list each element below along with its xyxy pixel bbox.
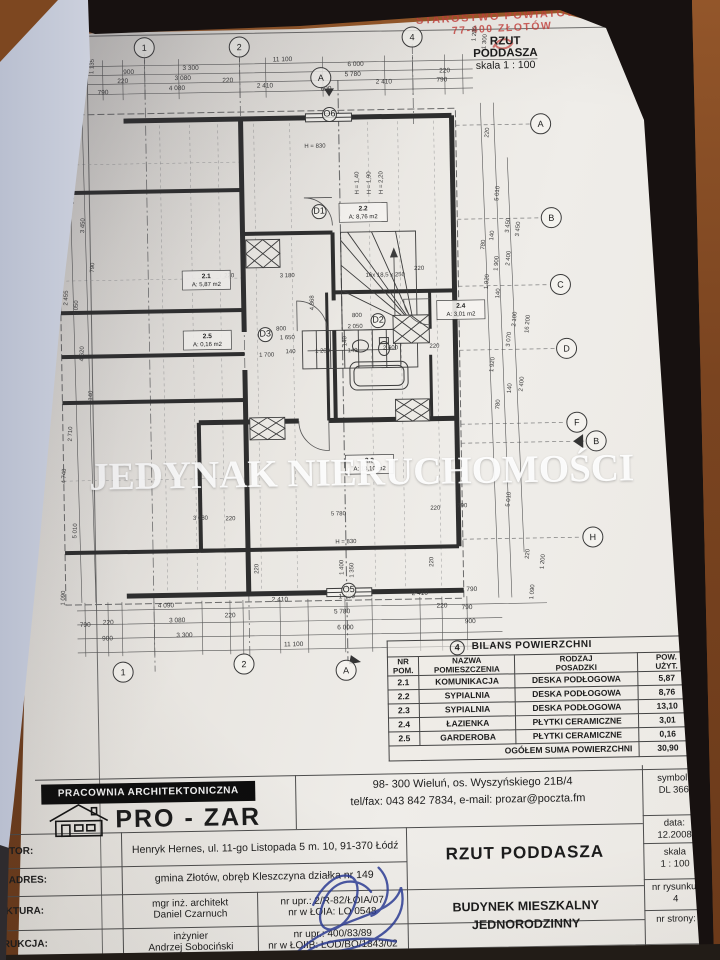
construction-person: inżynier Andrzej Sobociński (126, 930, 256, 954)
dim-interior: 16x 18,5 x 250 (366, 272, 406, 279)
dim-interior: 220 (429, 344, 440, 350)
dim-top: 2 410 (376, 78, 393, 85)
dim-bottom: 6 000 (337, 624, 354, 631)
dim-top: 3 300 (182, 65, 199, 72)
photographed-blueprint-page: STAROSTWO POWIATOWE 77-400 ZŁOTÓW RZUT P… (0, 0, 720, 960)
table-cell: 5,87 (638, 671, 696, 686)
table-title: BILANS POWIERZCHNI (472, 639, 592, 652)
dim-right: 3 070 (506, 331, 513, 347)
house-logo-icon (47, 798, 110, 839)
dim-right: 1 090 (529, 583, 536, 599)
table-cell: 3,01 (638, 713, 696, 728)
dim-bottom: 220 (437, 602, 448, 609)
table-ref-circle: 4 (450, 640, 465, 655)
dim-top: 6 000 (347, 61, 364, 68)
dim-right: 5 010 (494, 185, 501, 201)
architecture-person: mgr inż. architekt Daniel Czarnuch (125, 897, 255, 921)
grid-marker-bottom-label: A (343, 665, 349, 675)
dim-bottom: 3 300 (176, 632, 193, 639)
grid-marker-right-label: F (574, 417, 580, 427)
dim-right: 1 280 (471, 25, 478, 41)
chimney-blocks (246, 237, 431, 440)
dim-right: 780 (480, 239, 487, 250)
meta-date: data:12.2008 (643, 817, 706, 842)
grid-marker-right-label: B (548, 213, 554, 223)
table-cell: 2.1 (388, 676, 419, 691)
dim-right: 1 920 (489, 356, 496, 372)
table-cell: 2.2 (388, 690, 419, 705)
ref-marker-o5-label: O5 (343, 584, 355, 594)
dim-interior: 1 650 (280, 335, 296, 341)
table-cell: 0,16 (638, 727, 696, 742)
dim-right: 140 (495, 288, 502, 299)
grid-marker-right-label: B (593, 436, 599, 446)
dim-top: 5 780 (345, 71, 362, 78)
ref-marker-d1-label: D1 (313, 205, 325, 215)
table-total-value: 30,90 (639, 741, 697, 757)
dim-top: 2 410 (257, 82, 274, 89)
dim-interior: 1 200 (315, 348, 331, 354)
room-area: A: 8,76 m2 (349, 214, 379, 221)
dim-left: 140 (88, 390, 94, 401)
dim-interior: 220 (414, 266, 425, 272)
dim-top: 11 100 (273, 56, 293, 63)
grid-marker-right-label: D (563, 343, 570, 353)
investor-label: INWESTOR: (0, 846, 33, 858)
table-cell: 2.5 (389, 732, 420, 747)
meta-drawing-no: nr rysunku:4 (644, 881, 707, 906)
dim-bottom: 11 100 (284, 641, 304, 648)
area-balance-table: 4 BILANS POWIERZCHNI NRPOM.NAZWAPOMIESZC… (387, 635, 698, 762)
dim-top: 220 (222, 77, 233, 84)
dim-right: 1 300 (482, 33, 489, 49)
dim-right: 16 200 (524, 314, 532, 333)
dim-right: 1 920 (484, 273, 491, 289)
room-id: 2.4 (456, 303, 466, 310)
dim-top: 220 (117, 78, 128, 85)
table-cell: 8,76 (638, 685, 696, 700)
dim-right: 2 100 (511, 311, 518, 327)
architecture-label: ARCHITEKTURA: (0, 906, 44, 918)
room-area: A: 0,16 m2 (193, 342, 223, 349)
window-symbols (305, 113, 371, 597)
dim-top: 790 (98, 89, 109, 96)
dim-right: 5 010 (506, 491, 513, 507)
dim-left: 140 (82, 83, 88, 94)
dim-left: 3 450 (80, 217, 87, 233)
dim-left: 790 (90, 262, 96, 273)
dim-interior: 790 (457, 503, 468, 509)
grid-marker-top-label: 2 (237, 42, 242, 52)
dim-bottom: 900 (465, 618, 476, 625)
room-id: 2.2 (359, 205, 369, 212)
grid-marker-top-label: 4 (410, 32, 415, 42)
dim-left: 1 135 (89, 58, 96, 74)
dim-top: 790 (436, 76, 447, 83)
dim-interior: 3 180 (280, 273, 296, 279)
dim-right: 220 (484, 127, 491, 138)
construction-label: KONSTRUKCJA: (0, 939, 48, 951)
room-area: A: 3,01 m2 (446, 311, 476, 318)
dim-left: 4 620 (79, 345, 86, 361)
dim-interior: 140 (342, 336, 348, 347)
dim-left: 1 090 (61, 590, 68, 606)
studio-name: PRO - ZAR (105, 803, 270, 835)
dim-interior: 800 (276, 326, 287, 332)
room-area: A: 5,87 m2 (192, 282, 222, 289)
dim-right: 220 (525, 548, 532, 559)
dim-right: 1 200 (540, 553, 547, 569)
grid-marker-bottom-label: 1 (121, 667, 126, 677)
ref-marker-o6-label: O6 (323, 108, 335, 118)
axis-lines (144, 44, 423, 672)
dim-interior: H = 1,40 (354, 171, 360, 195)
table-cell: 2.4 (388, 718, 419, 733)
dim-interior: 140 (286, 349, 297, 355)
dim-top: 900 (123, 69, 134, 76)
dim-bottom: 220 (225, 612, 236, 619)
dim-bottom: 220 (103, 619, 114, 626)
dim-left: 2 710 (68, 426, 75, 442)
building-name-cell: BUDYNEK MIESZKALNY JEDNORODZINNY (407, 895, 645, 935)
dim-bottom: 5 780 (334, 608, 351, 615)
dim-right: 3 450 (505, 217, 512, 233)
meta-symbol: symbol:DL 366 (642, 772, 705, 797)
table-header: RODZAJPOSADZKI (515, 653, 638, 675)
dim-interior: 220 (430, 506, 441, 512)
ref-marker-d3-label: D3 (259, 328, 271, 338)
dim-bottom: 2 410 (272, 596, 289, 603)
dim-left: 5 220 (70, 189, 77, 205)
dim-left: 2 050 (74, 300, 81, 316)
dim-right: 140 (489, 230, 496, 241)
grid-marker-right-label: C (557, 280, 564, 290)
dim-interior: 5 780 (331, 511, 347, 517)
dim-interior: H = 830 (335, 539, 357, 545)
dim-interior: 2 050 (348, 324, 364, 330)
meta-page: nr strony: (644, 913, 707, 926)
dim-left: 2 455 (63, 290, 70, 306)
table-header: POW.UŻYT. (637, 652, 696, 672)
dim-bottom: 790 (466, 586, 477, 593)
meta-scale: skala1 : 100 (643, 846, 706, 871)
dim-bottom: 790 (462, 604, 473, 611)
dim-bottom: 790 (80, 622, 91, 629)
dim-interior: 800 (352, 313, 363, 319)
table-cell: 2.3 (388, 704, 419, 719)
adres-label: ADRES: (9, 875, 48, 887)
dim-interior: H = 830 (304, 144, 326, 150)
dim-right: 780 (495, 399, 502, 410)
drawing-content: STAROSTWO POWIATOWE 77-400 ZŁOTÓW RZUT P… (0, 0, 720, 960)
dim-interior: 220 (254, 563, 260, 574)
dim-interior: 220 (225, 516, 236, 522)
signature (274, 857, 436, 960)
grid-marker-top-label: 1 (142, 43, 147, 53)
dim-bottom: 4 090 (158, 602, 175, 609)
grid-marker-bottom-label: 2 (241, 659, 246, 669)
ref-marker-d2-label: D2 (372, 314, 384, 324)
room-id: 2.5 (203, 333, 213, 340)
dim-interior: H = 2,20 (378, 170, 384, 194)
dim-interior: 1 700 (259, 352, 275, 358)
dim-interior: 4 368 (310, 295, 316, 311)
table-cell: 13,10 (638, 699, 696, 714)
dim-bottom: 900 (102, 635, 113, 642)
dim-right: 3 450 (515, 221, 522, 237)
dim-right: 140 (507, 382, 514, 393)
dim-interior: 1 350 (349, 562, 355, 578)
table-header: NAZWAPOMIESZCZENIA (419, 655, 516, 676)
table-header: NRPOM. (387, 657, 418, 677)
dim-interior: H = 1,90 (366, 171, 372, 195)
dim-bottom: 3 080 (169, 617, 186, 624)
dim-bottom: 2 410 (412, 590, 429, 597)
dim-interior: 3 080 (193, 516, 209, 522)
dim-interior: 220 (429, 556, 435, 567)
table-grid: NRPOM.NAZWAPOMIESZCZENIARODZAJPOSADZKIPO… (387, 651, 698, 762)
dim-top: 3 080 (175, 75, 192, 82)
grid-marker-right-label: H (590, 532, 597, 542)
dim-interior: 140 (348, 348, 359, 354)
dim-left: 5 010 (72, 523, 79, 539)
drawing-title-cell: RZUT PODDASZA (406, 841, 643, 865)
dim-interior: 1 400 (339, 559, 345, 575)
dim-top: 4 080 (169, 85, 186, 92)
grid-marker-right-label: A (538, 119, 544, 129)
dim-right: 2 400 (519, 376, 526, 392)
dim-top: 220 (439, 67, 450, 74)
dim-interior: 2 600 (383, 345, 399, 351)
room-id: 2.1 (202, 273, 212, 280)
grid-marker-top-label: A (318, 73, 324, 83)
